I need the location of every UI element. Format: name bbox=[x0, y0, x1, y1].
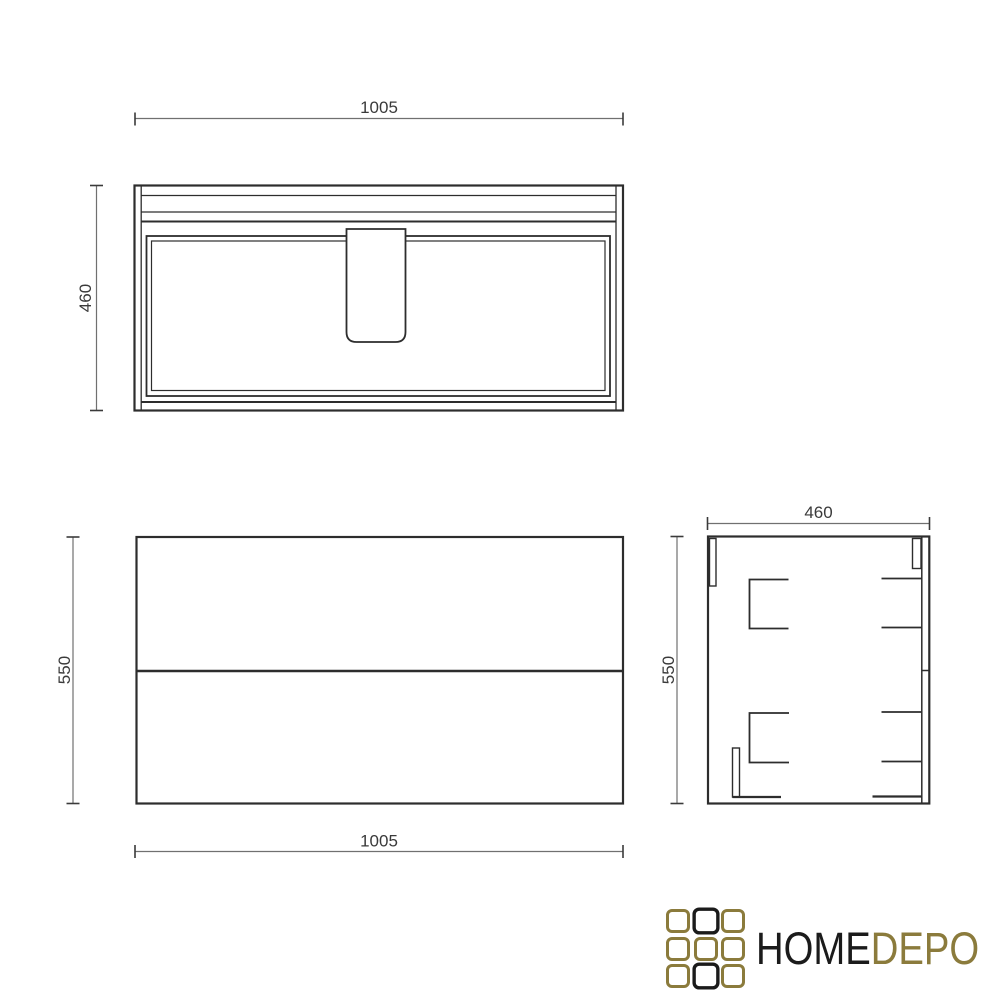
logo-text-depo: DEPO bbox=[871, 923, 979, 974]
sink-cutout bbox=[347, 229, 406, 342]
side-view-height-label: 550 bbox=[659, 656, 678, 684]
front-view-height-label: 550 bbox=[55, 656, 74, 684]
logo-grid-cell bbox=[666, 964, 690, 988]
logo-wordmark: HOMEDEPO bbox=[756, 909, 979, 988]
top-view-depth-label: 460 bbox=[76, 284, 95, 312]
side-view: 460 550 bbox=[659, 503, 930, 804]
lower-drawer-runner-front bbox=[750, 713, 790, 763]
logo-grid-cell bbox=[666, 937, 690, 961]
logo-grid-cell bbox=[666, 909, 690, 933]
side-view-rear-bracket bbox=[913, 539, 922, 569]
side-view-outline bbox=[708, 537, 929, 804]
side-view-front-bracket bbox=[710, 539, 717, 587]
logo-grid-cell bbox=[721, 937, 745, 961]
front-view-width-label: 1005 bbox=[360, 832, 398, 851]
top-view: 1005 460 bbox=[76, 98, 623, 411]
side-view-depth-label: 460 bbox=[804, 503, 832, 522]
side-view-bottom-post bbox=[733, 748, 740, 797]
logo-grid-cell bbox=[721, 909, 745, 933]
logo-grid-cell bbox=[692, 907, 719, 934]
logo-grid-cell bbox=[692, 962, 719, 989]
logo-text-home: HOME bbox=[756, 923, 871, 974]
technical-drawing: 1005 460 550 bbox=[0, 0, 1000, 1000]
brand-logo: HOMEDEPO bbox=[666, 909, 1000, 988]
front-view: 550 1005 bbox=[55, 537, 623, 858]
logo-grid-icon bbox=[666, 909, 745, 988]
top-view-width-label: 1005 bbox=[360, 98, 398, 117]
upper-drawer-runner-front bbox=[750, 580, 789, 629]
logo-grid-cell bbox=[721, 964, 745, 988]
logo-grid-cell bbox=[694, 937, 718, 961]
